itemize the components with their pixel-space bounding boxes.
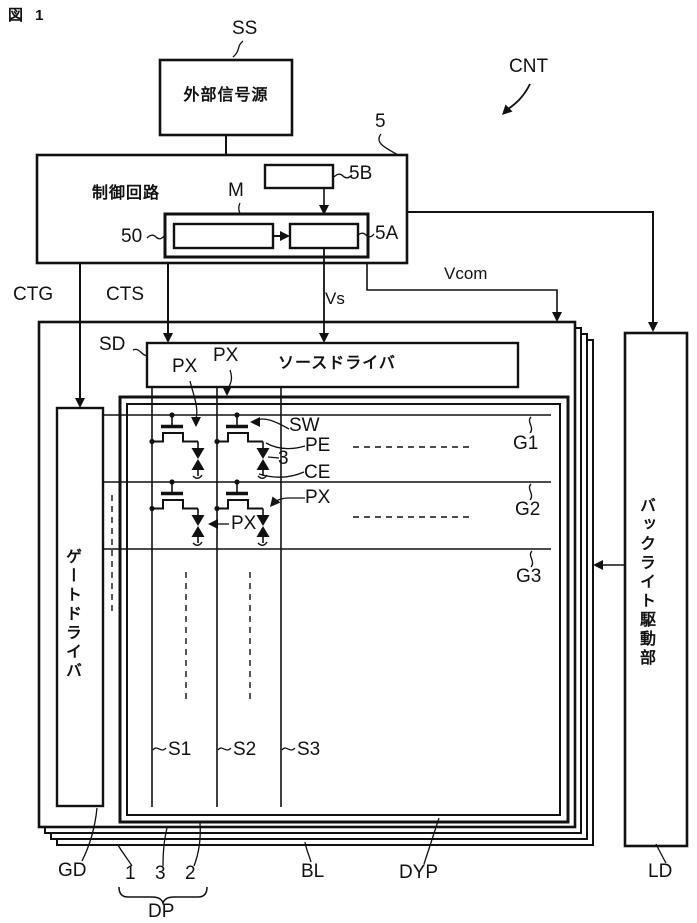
ref-px-2: PX bbox=[213, 346, 238, 365]
signal-ctg: CTG bbox=[13, 285, 53, 304]
ref-px-3: PX bbox=[231, 514, 256, 533]
ref-px-1: PX bbox=[172, 357, 197, 376]
ref-s3: S3 bbox=[297, 740, 320, 759]
signal-vcom: Vcom bbox=[444, 265, 487, 282]
ref-gd: GD bbox=[58, 861, 87, 880]
ref-dyp: DYP bbox=[399, 863, 438, 882]
ref-ss: SS bbox=[232, 19, 257, 38]
ref-layer-2: 2 bbox=[185, 864, 196, 883]
backlight-driver-label: バックライト駆動部 bbox=[637, 497, 653, 668]
ref-5: 5 bbox=[375, 112, 386, 131]
ref-ld: LD bbox=[648, 862, 672, 881]
ref-sd: SD bbox=[99, 335, 125, 354]
ref-s1: S1 bbox=[168, 740, 191, 759]
ref-5a: 5A bbox=[375, 224, 398, 243]
figure-number: 図 1 bbox=[8, 8, 48, 23]
ref-bl: BL bbox=[301, 862, 324, 881]
ref-layer-1: 1 bbox=[125, 864, 136, 883]
memory-m-box bbox=[174, 224, 273, 248]
ref-layer-3: 3 bbox=[155, 864, 166, 883]
signal-vs: Vs bbox=[325, 290, 345, 307]
ref-pe: PE bbox=[305, 436, 330, 455]
ref-g2: G2 bbox=[515, 500, 540, 519]
panel-inner-rect bbox=[127, 404, 560, 815]
ref-5b: 5B bbox=[349, 164, 372, 183]
ref-lc-3: 3 bbox=[278, 449, 289, 468]
external-signal-source-label: 外部信号源 bbox=[160, 88, 292, 104]
signal-cts: CTS bbox=[106, 285, 144, 304]
ref-dp: DP bbox=[148, 902, 174, 921]
ref-m: M bbox=[228, 181, 244, 200]
control-circuit-label: 制御回路 bbox=[92, 186, 160, 202]
ref-px-4: PX bbox=[305, 488, 330, 507]
backlight-driver-box bbox=[625, 333, 687, 846]
ref-50: 50 bbox=[121, 227, 142, 246]
ref-ce: CE bbox=[304, 463, 330, 482]
figure-canvas bbox=[0, 0, 697, 923]
ref-g3: G3 bbox=[516, 567, 541, 586]
ref-sw: SW bbox=[289, 416, 320, 435]
output-5a-box bbox=[290, 224, 358, 248]
ref-cnt: CNT bbox=[509, 57, 548, 76]
ref-g1: G1 bbox=[513, 434, 538, 453]
patent-figure: 図 1 SS 外部信号源 CNT 5 5B 制御回路 M 50 5A CTG C… bbox=[0, 0, 697, 923]
register-5b-box bbox=[265, 165, 333, 188]
source-driver-label: ソースドライバ bbox=[278, 356, 396, 372]
gate-driver-label: ゲートドライバ bbox=[63, 548, 79, 681]
ref-s2: S2 bbox=[233, 740, 256, 759]
